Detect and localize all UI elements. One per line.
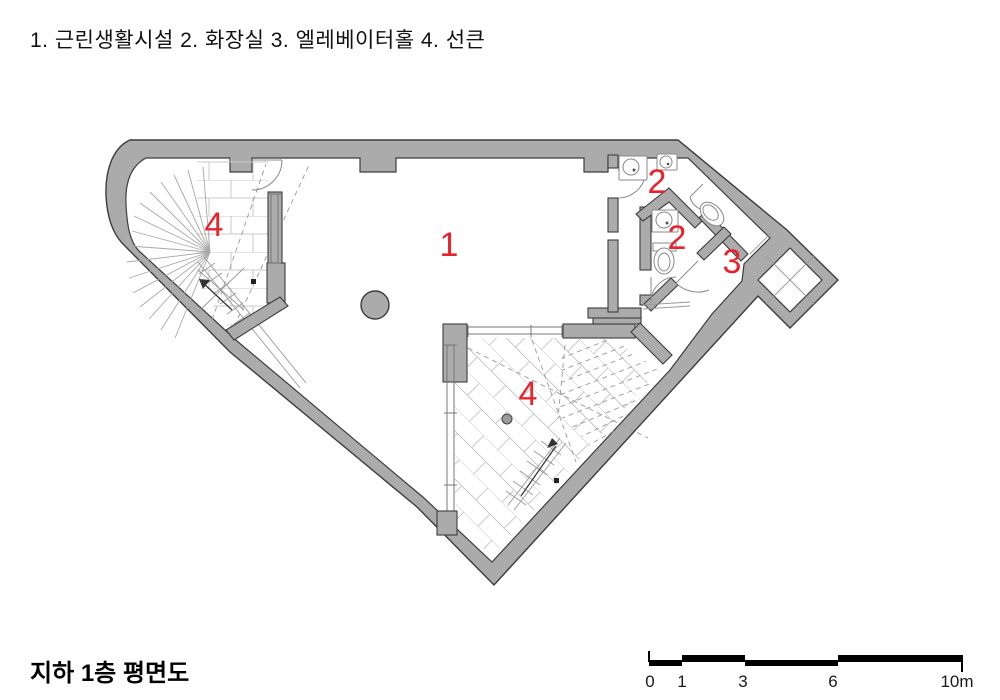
scale-label-10m: 10m [940, 672, 973, 691]
scale-label-0: 0 [645, 672, 654, 691]
room-label-2-upper: 2 [648, 163, 667, 201]
wall-window-base [563, 324, 635, 338]
wall-toilet-left [608, 240, 618, 312]
scale-bar: 0 1 3 6 10m [645, 651, 973, 691]
floor-plan-canvas: 1 2 2 3 4 4 0 1 3 6 10m [0, 0, 1000, 700]
scale-label-6: 6 [828, 672, 837, 691]
drawing-title: 지하 1층 평면도 [30, 653, 189, 688]
column-small [502, 414, 512, 424]
marker-dot [554, 478, 559, 483]
pier [267, 263, 285, 303]
room-label-3: 3 [723, 243, 742, 281]
pier [437, 511, 457, 535]
floor-plan-page: 1. 근린생활시설 2. 화장실 3. 엘레베이터홀 4. 선큰 [0, 0, 1000, 700]
marker-dot [251, 279, 256, 284]
scale-label-1: 1 [677, 672, 686, 691]
room-label-4-lower: 4 [519, 375, 538, 413]
wall-sunken-upper [268, 192, 282, 265]
sink [619, 156, 647, 180]
room-label-4-upper: 4 [205, 206, 224, 244]
room-label-2-lower: 2 [668, 219, 687, 257]
wall-toilet-left [608, 198, 618, 232]
room-label-1: 1 [440, 226, 459, 264]
scale-label-3: 3 [738, 672, 747, 691]
column [361, 291, 389, 319]
wall-toilet-left [608, 155, 618, 168]
